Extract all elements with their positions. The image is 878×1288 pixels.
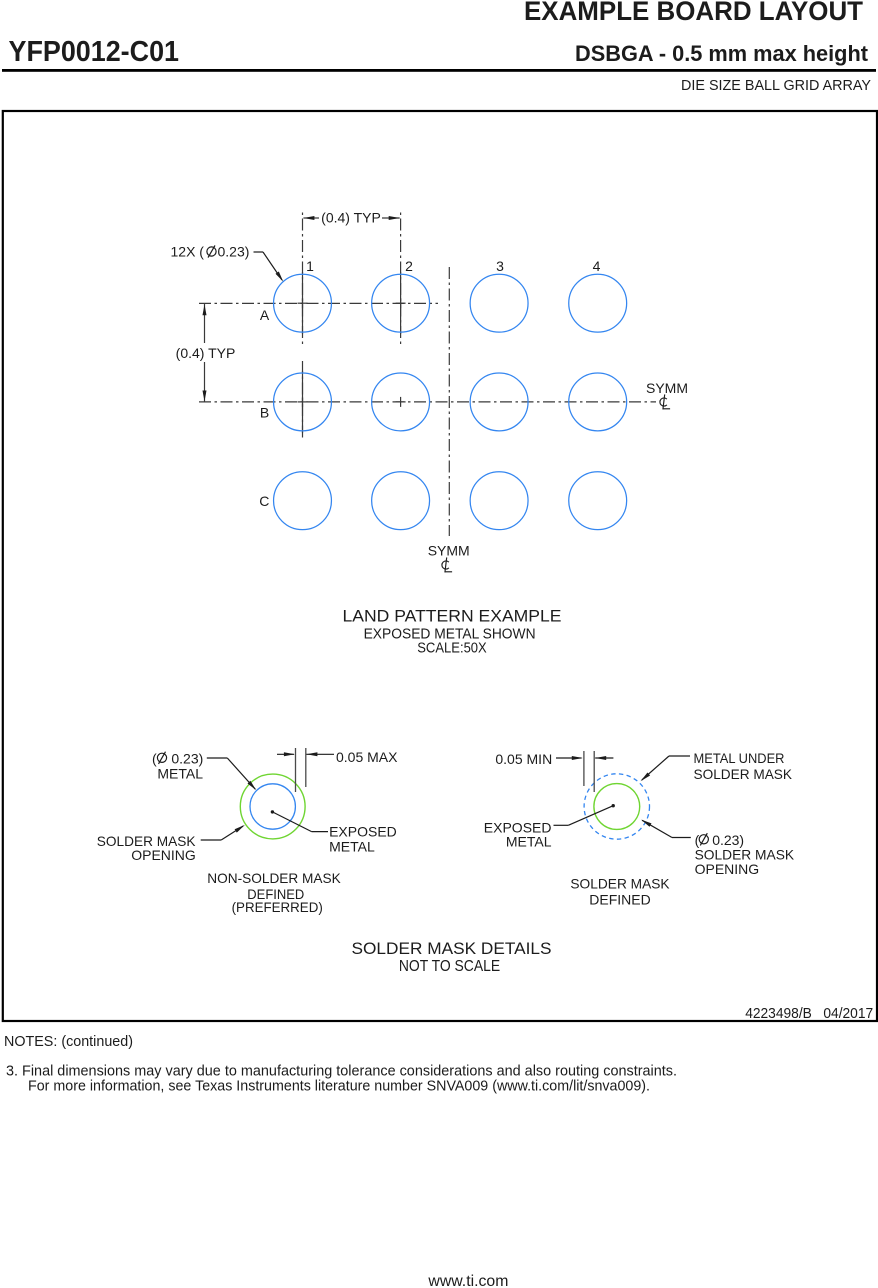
svg-text:3. Final dimensions may vary d: 3. Final dimensions may vary due to manu… bbox=[6, 1064, 677, 1080]
svg-text:(0.4) TYP: (0.4) TYP bbox=[176, 345, 236, 361]
svg-text:DEFINED: DEFINED bbox=[589, 892, 650, 908]
svg-text:2: 2 bbox=[405, 258, 413, 274]
svg-text:C: C bbox=[259, 493, 269, 509]
svg-text:0.05 MAX: 0.05 MAX bbox=[336, 749, 398, 765]
svg-text:www.ti.com: www.ti.com bbox=[427, 1273, 508, 1288]
svg-text:NOTES: (continued): NOTES: (continued) bbox=[4, 1034, 133, 1050]
svg-text:0.05 MIN: 0.05 MIN bbox=[495, 751, 552, 767]
svg-text:DIE SIZE BALL GRID ARRAY: DIE SIZE BALL GRID ARRAY bbox=[681, 78, 871, 94]
svg-text:(: ( bbox=[152, 751, 157, 767]
svg-text:For more information, see Texa: For more information, see Texas Instrume… bbox=[28, 1079, 650, 1095]
svg-text:SOLDER MASK: SOLDER MASK bbox=[694, 766, 793, 782]
svg-text:0.23): 0.23) bbox=[171, 751, 203, 767]
svg-text:METAL: METAL bbox=[157, 766, 203, 782]
svg-text:SOLDER MASK DETAILS: SOLDER MASK DETAILS bbox=[352, 940, 552, 958]
svg-text:SCALE:50X: SCALE:50X bbox=[417, 641, 487, 657]
svg-text:0.23): 0.23) bbox=[218, 244, 250, 260]
svg-text:A: A bbox=[260, 307, 270, 323]
svg-text:SYMM: SYMM bbox=[646, 380, 688, 396]
svg-text:SYMM: SYMM bbox=[428, 542, 470, 558]
svg-text:(0.4) TYP: (0.4) TYP bbox=[321, 210, 381, 226]
svg-text:SOLDER MASK: SOLDER MASK bbox=[570, 876, 670, 892]
svg-text:YFP0012-C01: YFP0012-C01 bbox=[9, 36, 180, 68]
svg-text:EXAMPLE BOARD LAYOUT: EXAMPLE BOARD LAYOUT bbox=[524, 0, 863, 26]
svg-text:METAL: METAL bbox=[506, 834, 552, 850]
svg-text:DSBGA - 0.5 mm max height: DSBGA - 0.5 mm max height bbox=[575, 41, 869, 66]
svg-text:(PREFERRED): (PREFERRED) bbox=[232, 899, 323, 915]
svg-text:12X (: 12X ( bbox=[171, 244, 205, 260]
svg-text:NON-SOLDER MASK: NON-SOLDER MASK bbox=[207, 870, 341, 886]
svg-text:4223498/B 04/2017: 4223498/B 04/2017 bbox=[745, 1005, 873, 1022]
svg-text:OPENING: OPENING bbox=[131, 847, 196, 863]
svg-text:B: B bbox=[260, 405, 269, 421]
svg-text:4: 4 bbox=[593, 258, 601, 274]
svg-text:3: 3 bbox=[496, 258, 504, 274]
svg-text:NOT TO SCALE: NOT TO SCALE bbox=[399, 958, 500, 975]
svg-text:EXPOSED: EXPOSED bbox=[329, 824, 397, 840]
svg-text:LAND PATTERN EXAMPLE: LAND PATTERN EXAMPLE bbox=[343, 607, 562, 625]
svg-text:METAL UNDER: METAL UNDER bbox=[694, 750, 785, 766]
svg-text:METAL: METAL bbox=[329, 839, 375, 855]
svg-text:OPENING: OPENING bbox=[695, 861, 760, 877]
svg-text:1: 1 bbox=[306, 258, 314, 274]
